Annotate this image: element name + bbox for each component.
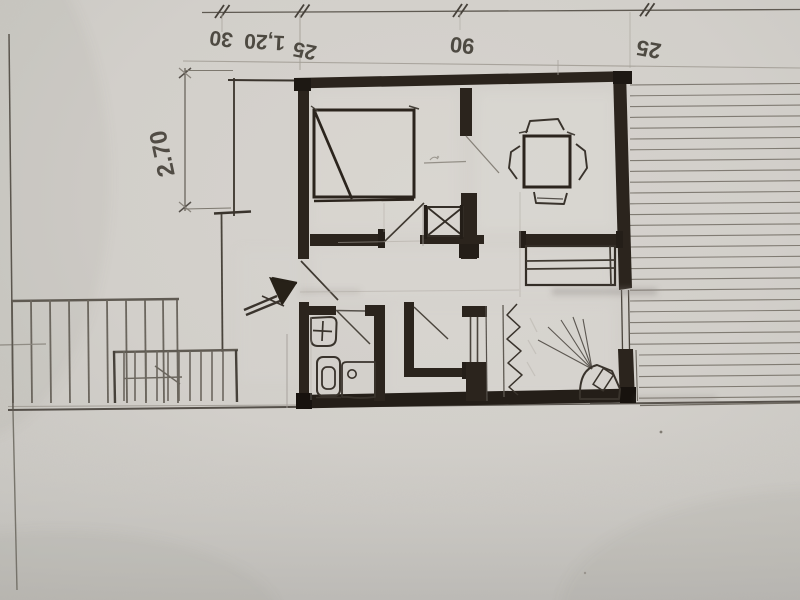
svg-text:90: 90: [449, 32, 476, 59]
svg-text:1,20: 1,20: [244, 29, 286, 54]
svg-text:25: 25: [291, 37, 319, 64]
svg-text:30: 30: [208, 26, 234, 52]
svg-text:25: 25: [634, 35, 662, 64]
